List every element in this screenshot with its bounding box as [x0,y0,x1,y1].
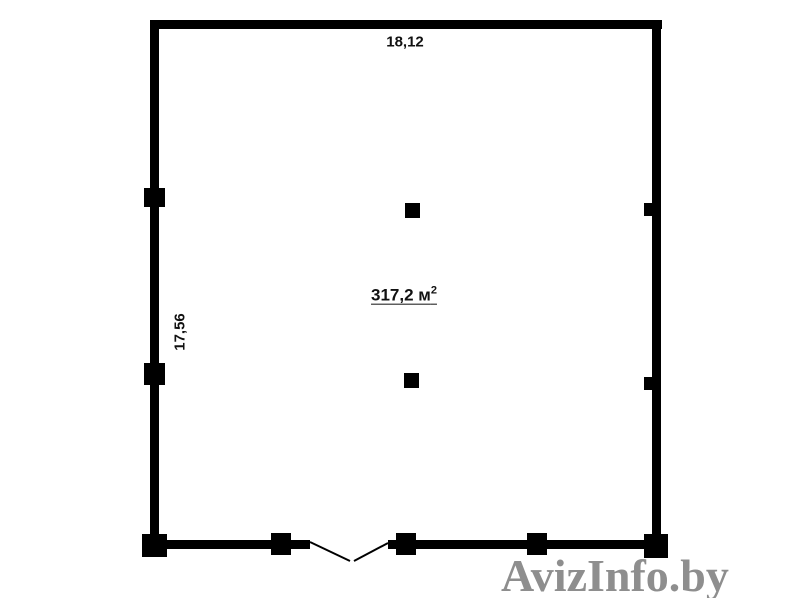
wall-top [150,20,662,29]
area-label: 317,2 м2 [371,285,437,306]
width-dimension-label: 18,12 [386,34,424,51]
column-lower [404,373,419,388]
area-value: 317,2 м [371,285,431,304]
pier-left-upper [144,188,165,207]
notch-right-upper [644,203,653,216]
floor-plan-image: 18,12 17,56 317,2 м2 AvizInfo.by [0,0,799,598]
wall-bottom-right-segment [388,540,662,549]
door-leaf-right [354,543,388,561]
pier-bottom-left-corner [142,534,167,557]
pier-bottom-right-of-door [396,533,416,555]
pier-left-lower [144,363,165,385]
watermark: AvizInfo.by [501,549,729,598]
area-superscript: 2 [431,285,437,297]
column-upper [405,203,420,218]
wall-left [150,20,159,549]
height-dimension-label: 17,56 [172,313,189,351]
wall-right [652,20,661,549]
door-leaf-left [310,542,350,561]
notch-right-lower [644,377,653,390]
pier-bottom-left-of-door [271,533,291,555]
